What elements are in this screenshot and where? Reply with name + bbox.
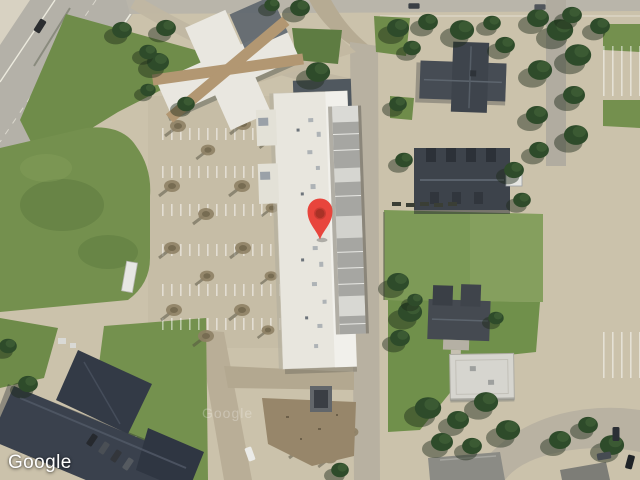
satellite-imagery: Google xyxy=(0,0,640,480)
map-watermark: Google xyxy=(202,405,253,421)
map-canvas[interactable]: Google Google xyxy=(0,0,640,480)
google-logo[interactable]: Google xyxy=(8,452,72,474)
pin-dot xyxy=(315,209,324,218)
